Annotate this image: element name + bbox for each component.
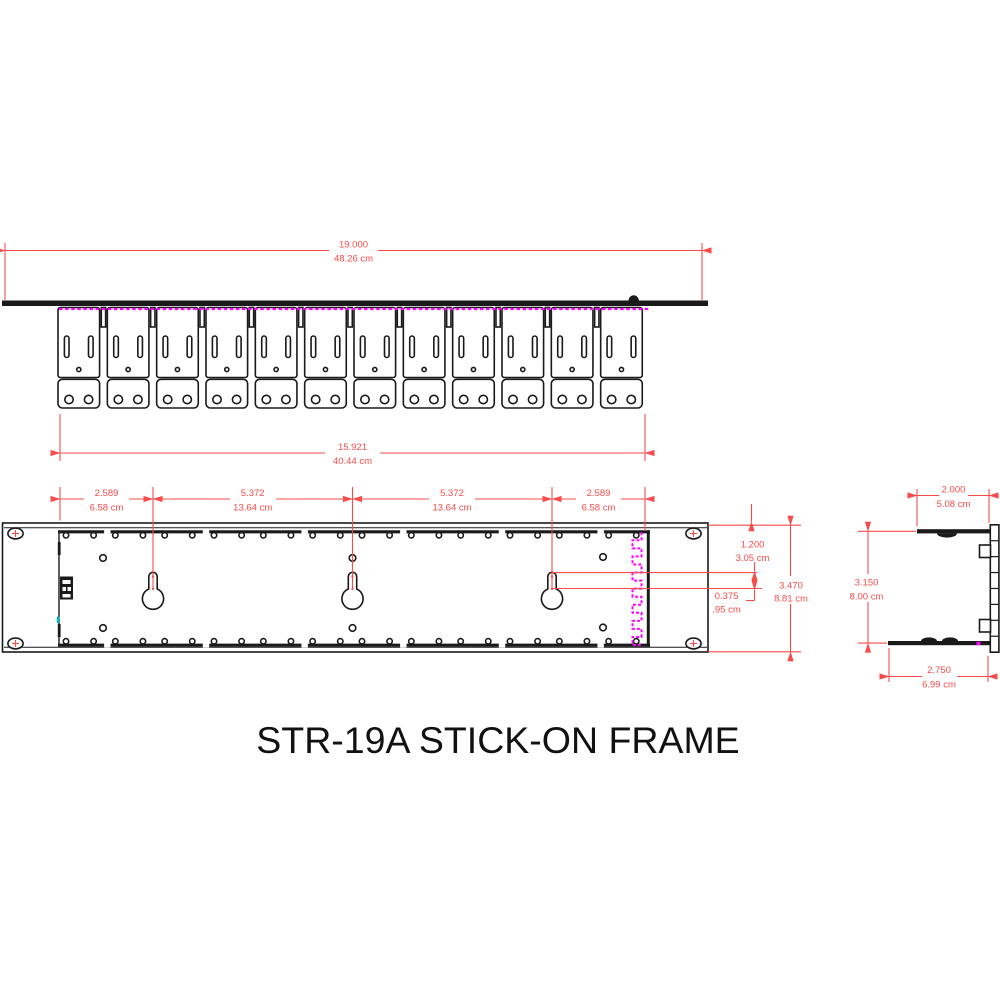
dim-inches: 3.470	[779, 581, 803, 592]
dim-mount-width: 15.921 40.44 cm	[60, 414, 645, 467]
dim-inches: 5.372	[241, 488, 265, 499]
bracket-slot	[508, 336, 513, 358]
bracket-slot	[187, 336, 192, 358]
dim-inches: 19.000	[339, 240, 368, 251]
rail-hole	[288, 533, 293, 538]
side-view: 2.000 5.08 cm 3.150 8.00 cm 2.750 6.99 c…	[850, 485, 999, 691]
bracket-slot	[64, 336, 69, 358]
adhesive-blob	[942, 637, 958, 641]
bracket-slot	[286, 336, 291, 358]
pilot-hole	[600, 624, 607, 631]
dim-cm: 8.00 cm	[850, 592, 884, 603]
bracket-hole-small	[373, 367, 377, 371]
rail-hole	[409, 533, 414, 538]
rail-hole	[113, 533, 118, 538]
bracket-slot	[212, 336, 217, 358]
rail-hole	[486, 639, 491, 644]
rail-hole	[458, 639, 463, 644]
rail-hole	[606, 639, 611, 644]
bracket-lower	[305, 379, 347, 408]
rail-hole	[486, 533, 491, 538]
bracket-hole	[84, 395, 92, 403]
bracket-hole-small	[570, 367, 574, 371]
bracket-hole	[114, 395, 122, 403]
dim-inches: 2.750	[927, 665, 951, 676]
bracket-hole	[430, 395, 438, 403]
bracket-slot	[558, 336, 563, 358]
bracket-hole	[262, 395, 270, 403]
dim-inches: 5.372	[440, 488, 464, 499]
screw-bump	[629, 295, 639, 300]
rail-hole	[239, 639, 244, 644]
rail-gap	[301, 530, 307, 535]
pilot-hole	[100, 555, 107, 562]
bracket-lower	[107, 379, 149, 408]
pilot-hole	[600, 554, 607, 561]
technical-drawing: 19.000 48.26 cm 15.921 40.44 cm	[0, 0, 1000, 1000]
rail-hole	[162, 533, 167, 538]
rail-gap	[597, 530, 603, 535]
bracket-lower	[157, 379, 199, 408]
bracket-hole	[232, 395, 240, 403]
bracket-hole	[134, 395, 142, 403]
pilot-hole	[349, 625, 356, 632]
label-mark	[68, 587, 72, 591]
bracket-hole	[213, 395, 221, 403]
front-view: 2.589 6.58 cm 5.372 13.64 cm 5.372 13.64…	[3, 487, 808, 652]
bracket-tab	[101, 308, 105, 328]
rail-hole	[91, 533, 96, 538]
rail-hole	[288, 639, 293, 644]
rail-hole	[190, 639, 195, 644]
bracket-tab	[447, 308, 451, 328]
rail-hole	[535, 533, 540, 538]
rail-gap	[499, 643, 505, 648]
dim-cm: 6.58 cm	[582, 503, 616, 514]
dim-inches: 0.375	[715, 591, 739, 602]
rail-hole	[436, 533, 441, 538]
rail-hole	[584, 639, 589, 644]
bracket-tab	[348, 308, 352, 328]
dim-cm: 6.58 cm	[90, 503, 124, 514]
rail-hole	[584, 533, 589, 538]
bracket-slot	[114, 336, 119, 358]
rail-hole	[338, 533, 343, 538]
rail-gap	[104, 530, 110, 535]
side-dimensions: 2.000 5.08 cm 3.150 8.00 cm 2.750 6.99 c…	[850, 485, 989, 691]
bracket-slot	[360, 336, 365, 358]
bracket-tab	[200, 308, 204, 328]
drawing-sheet: 19.000 48.26 cm 15.921 40.44 cm	[0, 0, 1000, 1000]
rail-gap	[597, 643, 603, 648]
adhesive-blob	[921, 637, 937, 641]
bracket-hole	[361, 395, 369, 403]
bracket-slot	[262, 336, 267, 358]
bracket-tab	[496, 308, 500, 328]
bracket-lower	[403, 379, 445, 408]
mount-tab	[980, 620, 991, 633]
rail-gap	[203, 530, 209, 535]
bracket-hole-small	[126, 367, 130, 371]
bracket-lower	[58, 379, 100, 408]
bracket-slot	[138, 336, 143, 358]
rail-hole	[310, 639, 315, 644]
rail-hole	[436, 639, 441, 644]
bracket-slot	[311, 336, 316, 358]
bracket-hole-small	[323, 367, 327, 371]
label-mark	[63, 580, 71, 584]
rail-hole	[261, 639, 266, 644]
rail-hole	[190, 533, 195, 538]
rail-hole	[140, 639, 145, 644]
bracket-hole-small	[225, 367, 229, 371]
bracket-hole	[509, 395, 517, 403]
rail-hole	[458, 533, 463, 538]
rail-gap	[499, 530, 505, 535]
rail-hole	[310, 533, 315, 538]
rail-gap	[104, 643, 110, 648]
mounting-bar	[2, 301, 708, 307]
dim-inches: 2.589	[587, 488, 611, 499]
rail-hole	[557, 533, 562, 538]
bracket-slot	[483, 336, 488, 358]
dim-cm: 5.08 cm	[937, 499, 971, 510]
rail-hole	[606, 533, 611, 538]
bracket-lower	[551, 379, 593, 408]
rail-hole	[557, 639, 562, 644]
bracket-hole	[163, 395, 171, 403]
bracket-hole	[607, 395, 615, 403]
adhesive-blob	[937, 533, 957, 537]
rail-hole	[261, 533, 266, 538]
dim-cm: 48.26 cm	[334, 254, 373, 265]
bracket-slot	[434, 336, 439, 358]
rail-hole	[211, 533, 216, 538]
rail-hole	[634, 639, 639, 644]
label-mark	[63, 587, 67, 591]
dim-inches: 2.000	[942, 485, 966, 496]
edge-tick	[58, 542, 61, 555]
bracket-hole	[282, 395, 290, 403]
rail-gap	[203, 643, 209, 648]
teal-mark	[57, 617, 60, 624]
label-mark	[63, 594, 71, 598]
bracket-tab	[249, 308, 253, 328]
rail-hole	[359, 533, 364, 538]
bracket-hole	[65, 395, 73, 403]
adhesive-dot	[977, 642, 981, 645]
rail-hole	[63, 533, 68, 538]
bracket-tab	[151, 308, 155, 328]
dim-cm: 13.64 cm	[432, 503, 471, 514]
bracket-hole	[558, 395, 566, 403]
bracket-hole-small	[274, 367, 278, 371]
bracket-hole	[410, 395, 418, 403]
rail-gap	[400, 530, 406, 535]
rail-hole	[535, 639, 540, 644]
bracket-slot	[532, 336, 537, 358]
dim-cm: 3.05 cm	[736, 553, 770, 564]
drawing-title: STR-19A STICK-ON FRAME	[256, 719, 739, 761]
dim-overall-width: 19.000 48.26 cm	[5, 240, 702, 301]
bracket-tab	[299, 308, 303, 328]
bracket-slot	[631, 336, 636, 358]
dim-inches: 1.200	[741, 540, 765, 551]
bracket-hole	[311, 395, 319, 403]
bracket-hole-small	[521, 367, 525, 371]
rail-hole	[91, 639, 96, 644]
bracket-lower	[453, 379, 495, 408]
bracket-lower	[601, 379, 643, 408]
rail-hole	[409, 639, 414, 644]
mount-tab	[980, 545, 991, 558]
rail-hole	[387, 533, 392, 538]
bracket-hole	[627, 395, 635, 403]
bracket-tab	[595, 308, 599, 328]
bracket-hole	[183, 395, 191, 403]
dim-cm: .95 cm	[712, 605, 741, 616]
dim-inches: 15.921	[338, 442, 367, 453]
bracket-hole	[479, 395, 487, 403]
rail-hole	[211, 639, 216, 644]
bracket-hole-small	[471, 367, 475, 371]
stick-on-brackets	[58, 308, 642, 409]
bracket-slot	[410, 336, 415, 358]
dim-cm: 8.81 cm	[774, 594, 808, 605]
bracket-lower	[206, 379, 248, 408]
rail-hole	[387, 639, 392, 644]
rail-gap	[400, 643, 406, 648]
rail-hole	[140, 533, 145, 538]
rail-hole	[359, 639, 364, 644]
rail-hole	[634, 533, 639, 538]
rail-hole	[507, 639, 512, 644]
top-view: 19.000 48.26 cm 15.921 40.44 cm	[2, 240, 708, 468]
pilot-hole	[100, 625, 107, 632]
dim-cm: 13.64 cm	[233, 503, 272, 514]
bracket-slot	[163, 336, 168, 358]
rail-hole	[239, 533, 244, 538]
rail-gap	[301, 643, 307, 648]
bracket-slot	[459, 336, 464, 358]
bracket-tab	[545, 308, 549, 328]
edge-tick	[58, 624, 61, 637]
dim-inches: 2.589	[95, 488, 119, 499]
bracket-slot	[89, 336, 94, 358]
bracket-slot	[335, 336, 340, 358]
bracket-hole	[459, 395, 467, 403]
rail-hole	[338, 639, 343, 644]
bracket-hole	[528, 395, 536, 403]
bracket-hole-small	[619, 367, 623, 371]
top-flange	[917, 529, 990, 533]
bracket-slot	[236, 336, 241, 358]
dim-cm: 6.99 cm	[922, 680, 956, 691]
bracket-hole-small	[175, 367, 179, 371]
bracket-lower	[255, 379, 297, 408]
bracket-lower	[354, 379, 396, 408]
rail-hole	[113, 639, 118, 644]
bracket-slot	[582, 336, 587, 358]
rail-hole	[507, 533, 512, 538]
bracket-hole	[380, 395, 388, 403]
rail-hole	[162, 639, 167, 644]
bottom-flange	[888, 641, 990, 645]
bracket-slot	[384, 336, 389, 358]
dim-inches: 3.150	[855, 578, 879, 589]
rail-hole	[63, 639, 68, 644]
bracket-hole	[331, 395, 339, 403]
bracket-hole	[578, 395, 586, 403]
bracket-hole-small	[77, 367, 81, 371]
bracket-lower	[502, 379, 544, 408]
dim-cm: 40.44 cm	[333, 456, 372, 467]
bracket-tab	[397, 308, 401, 328]
bracket-hole-small	[422, 367, 426, 371]
bracket-slot	[607, 336, 612, 358]
